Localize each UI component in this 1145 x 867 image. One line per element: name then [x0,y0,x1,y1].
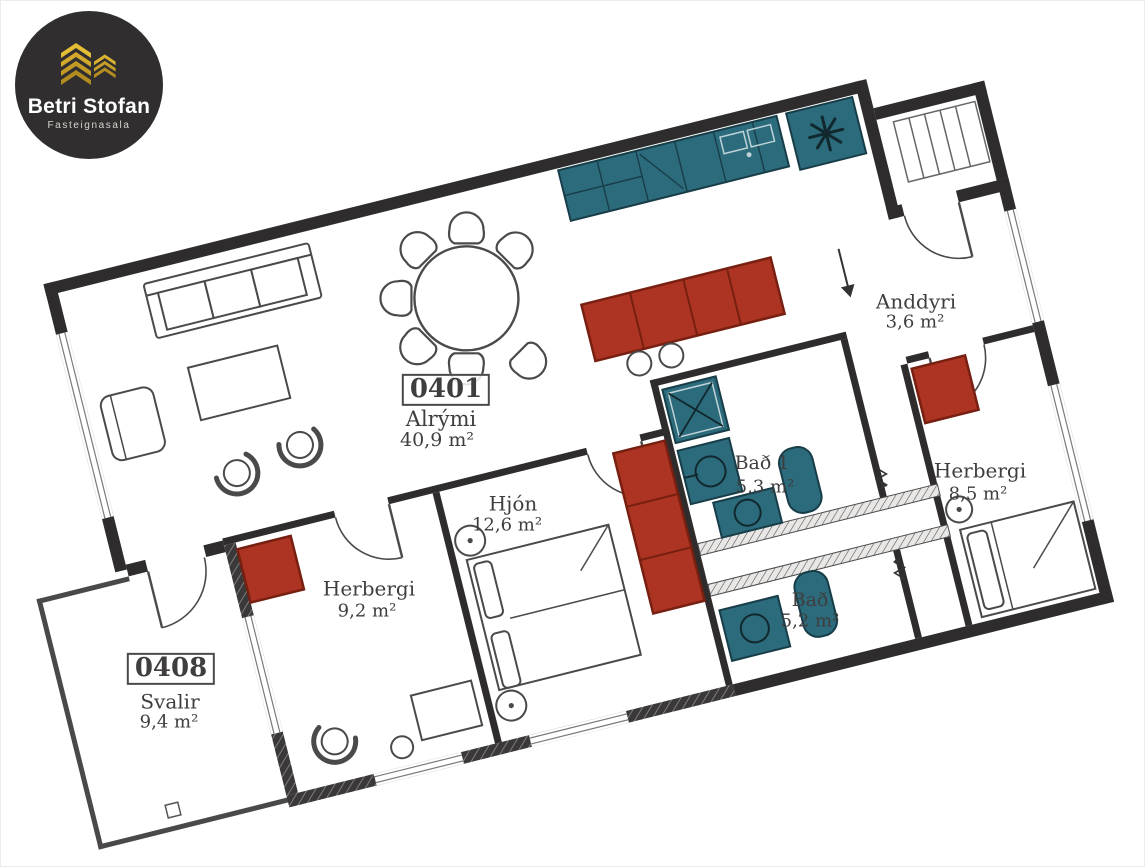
unit-label-0408: 0408 [127,653,215,685]
room-area-svalir: 9,4 m² [140,714,199,733]
double-bed [467,525,641,690]
room-label-bad1: Bað 1 [735,454,790,474]
desk [411,681,482,741]
wardrobe-herbergi-92 [237,536,304,603]
armchair-square [99,385,167,462]
logo-buildings-icon [59,40,119,91]
floorplan-svg [1,1,1145,867]
agency-logo: Betri Stofan Fasteignasala [15,11,163,159]
tub-chair [275,425,327,473]
logo-title: Betri Stofan [28,95,151,119]
bathroom-sink-bad [719,596,790,661]
coffee-table [188,346,290,421]
sliding-door-arrow-icon [869,466,912,580]
room-label-alrymi: Alrými [406,408,476,430]
room-area-bad1: 5,3 m² [736,479,795,498]
room-area-alrymi: 40,9 m² [400,431,474,451]
tub-chair [309,723,359,767]
unit-label-0401: 0401 [402,374,490,406]
neighbor-stairs [893,101,990,181]
kitchen-island [581,258,790,386]
room-label-hjon: Hjón [489,494,538,515]
entrance-arrow-icon [832,247,858,299]
tub-chair [212,450,266,503]
room-label-anddyri: Anddyri [876,292,956,313]
room-area-bad: 5,2 m² [781,613,840,632]
room-label-herbergi-92: Herbergi [323,579,415,600]
room-label-bad: Bað [792,591,829,611]
room-label-svalir: Svalir [140,692,199,713]
room-area-anddyri: 3,6 m² [886,314,945,333]
balcony-drain [165,802,181,818]
room-label-herbergi-85: Herbergi [934,461,1026,482]
logo-subtitle: Fasteignasala [47,120,130,131]
room-area-hjon: 12,6 m² [472,517,542,536]
room-area-herbergi-85: 8,5 m² [949,486,1008,505]
floorplan-page: 0401 Alrými 40,9 m² Anddyri 3,6 m² Hjón … [0,0,1145,867]
shower [662,376,729,443]
room-area-herbergi-92: 9,2 m² [338,603,397,622]
wardrobe-herbergi-85 [912,355,979,423]
stool [389,734,416,761]
bathroom-sink [678,438,743,504]
